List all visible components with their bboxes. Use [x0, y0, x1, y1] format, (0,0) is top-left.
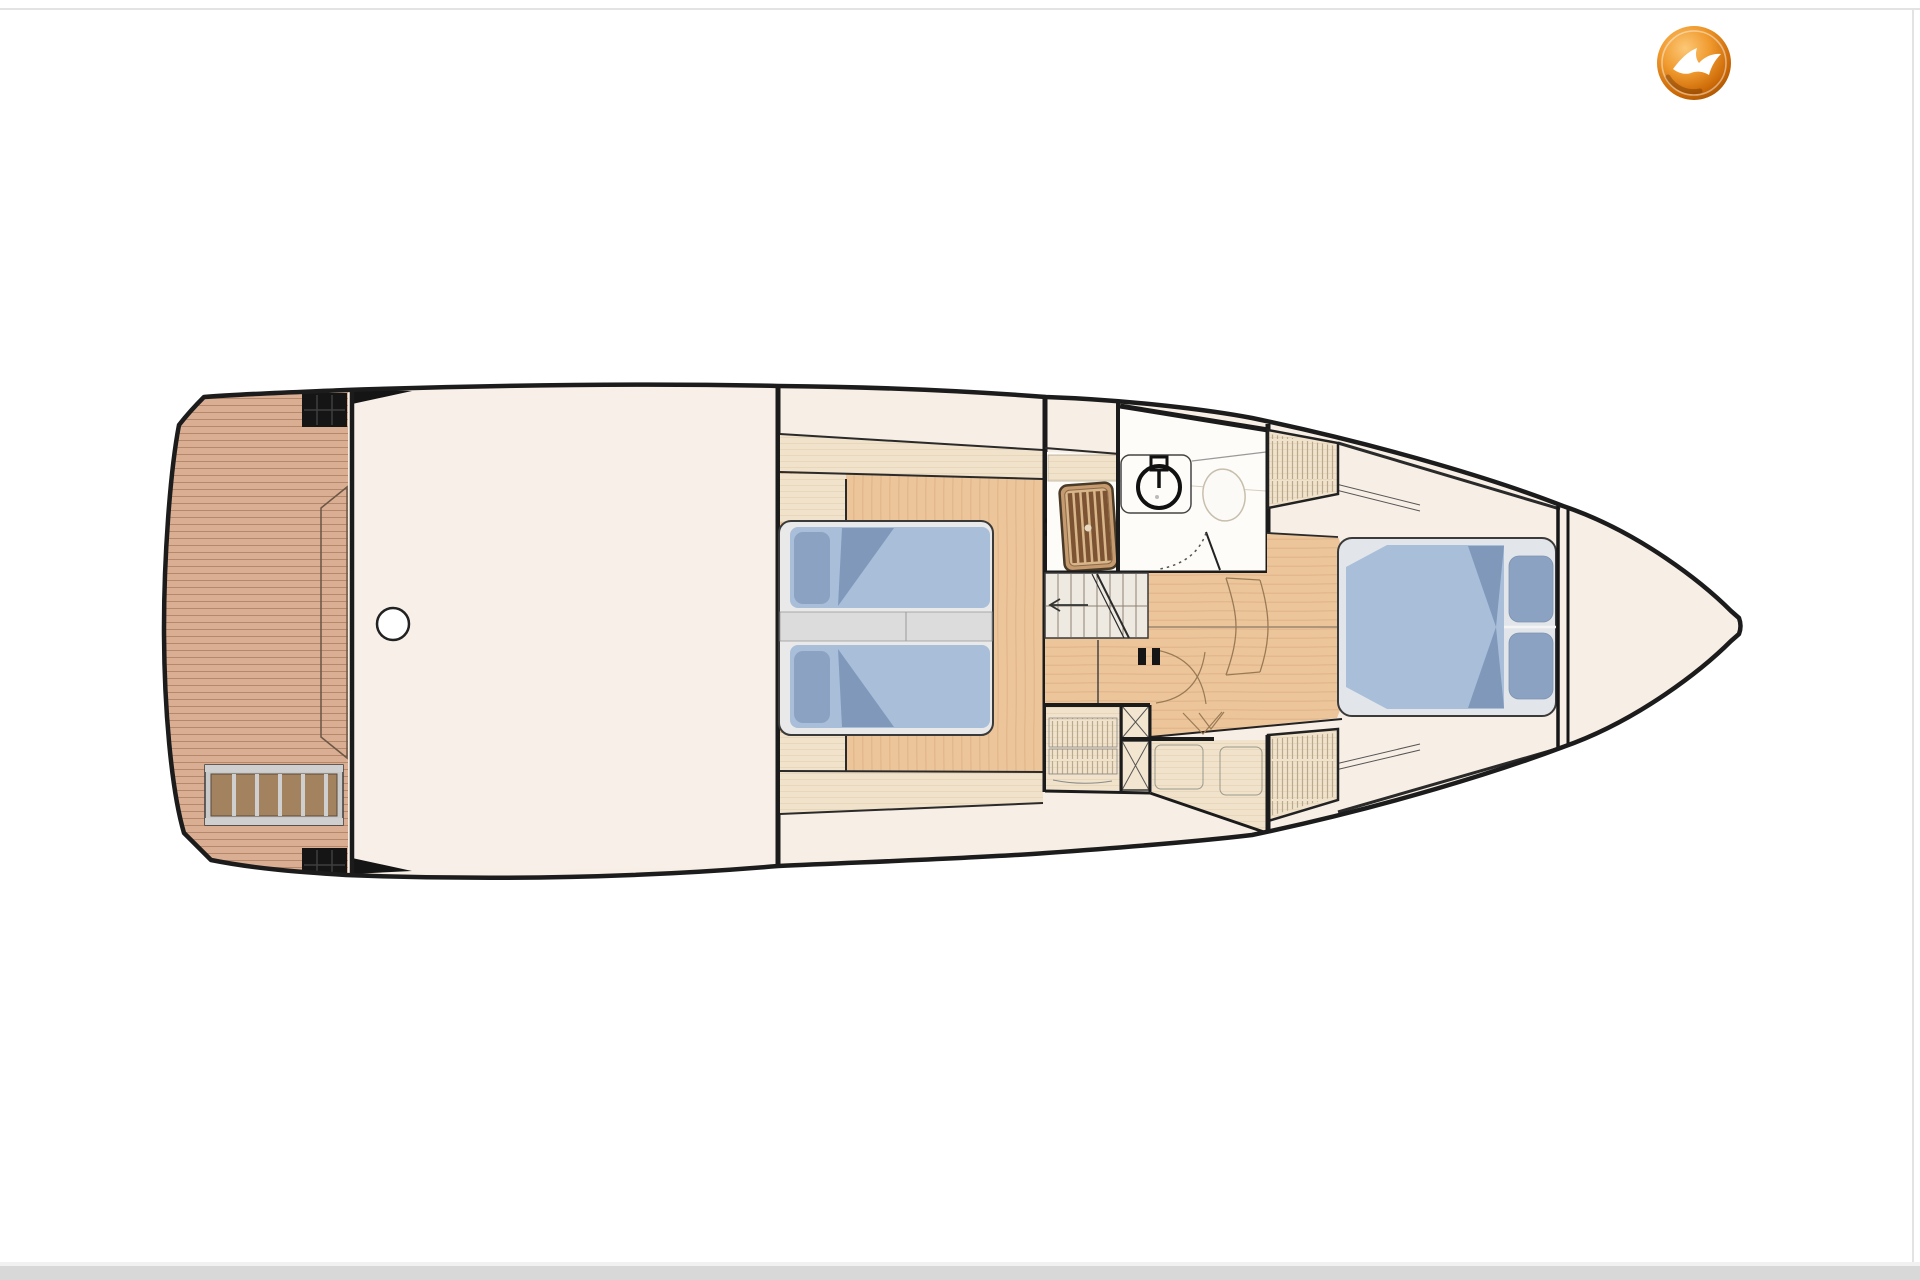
hanging-wardrobe — [1268, 430, 1338, 508]
owner-island-bed — [1338, 538, 1556, 716]
washbasin-icon — [1121, 455, 1191, 513]
pillow — [1509, 633, 1553, 699]
floorplan-canvas — [0, 0, 1920, 1280]
shelf-locker — [1049, 718, 1117, 783]
mattress-starboard — [790, 645, 990, 728]
aft-cabin — [779, 394, 1056, 814]
gangway-ladder — [205, 765, 343, 825]
pillow — [794, 532, 830, 604]
companionway-stairs — [1045, 573, 1148, 638]
deck-hatch — [377, 608, 409, 640]
bed-center-step — [780, 612, 992, 641]
page — [0, 0, 1920, 1280]
stern-fitting-top — [302, 393, 347, 427]
shower-bench — [1048, 455, 1117, 481]
pillow — [794, 651, 830, 723]
stern-fitting-bottom — [302, 848, 347, 882]
swim-platform — [160, 380, 348, 882]
saloon-deck — [352, 386, 778, 874]
pillow — [1509, 556, 1553, 622]
page-bottom-bar — [0, 1266, 1920, 1280]
mattress-port — [790, 527, 990, 608]
broker-logo — [1657, 26, 1731, 100]
aft-cabin-twin-bed — [779, 521, 993, 735]
shower-grate-icon — [1059, 482, 1118, 571]
